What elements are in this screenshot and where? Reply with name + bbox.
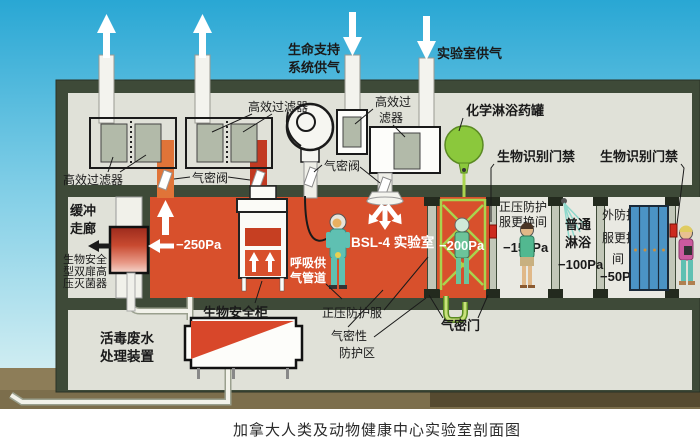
chemical-tank-label: 化学淋浴药罐 — [466, 103, 544, 118]
hepa-label-top: 高效过滤器 — [248, 99, 308, 114]
biometric-reader-2 — [670, 224, 677, 237]
hepa-filter-box-4 — [370, 127, 440, 173]
autoclave-label-2: 型双扉高 — [63, 264, 107, 278]
hepa-label-mid-1: 高效过 — [375, 94, 411, 109]
autoclave — [110, 227, 148, 273]
pressure-suit-label: 正压防护服 — [322, 305, 382, 320]
autoclave-label-1: 生物安全 — [63, 252, 107, 266]
figure-caption: 加拿大人类及动物健康中心实验室剖面图 — [233, 421, 521, 439]
autoclave-drain-pipe — [127, 273, 135, 311]
biometric-reader-1 — [490, 225, 497, 238]
suit-room-label-1: 正压防护 — [499, 199, 547, 214]
cabinet-label: 生物安全柜 — [203, 305, 268, 320]
valve-label-left: 气密阀 — [192, 170, 228, 185]
supply-diffuser — [367, 192, 403, 205]
lab-supply-label: 实验室供气 — [437, 46, 502, 61]
bio-access-label-left: 生物识别门禁 — [497, 149, 575, 164]
plain-shower-pressure: −100Pa — [558, 257, 604, 272]
bsl4-lab-cross-section-figure: 生命支持 系统供气 实验室供气 — [0, 0, 700, 448]
bsl4-room-label: BSL-4 实验室 — [351, 234, 435, 250]
buffer-pass-door-top — [116, 197, 142, 229]
breathing-label-2: 气管道 — [289, 270, 326, 285]
plain-shower-label-2: 淋浴 — [565, 235, 592, 250]
supply-stack-2 — [419, 58, 434, 130]
supply-stack-1 — [345, 55, 360, 115]
biosafety-cabinet — [237, 186, 287, 291]
bio-access-label-right: 生物识别门禁 — [600, 149, 678, 164]
airtight-zone-label-2: 防护区 — [339, 345, 375, 360]
hepa-label-mid-2: 滤器 — [379, 111, 403, 125]
exhaust-stack-1 — [99, 55, 114, 123]
life-support-supply-label-2: 系统供气 — [288, 60, 340, 75]
life-support-supply-label-1: 生命支持 — [288, 42, 340, 57]
breathing-label-1: 呼吸供 — [290, 255, 326, 270]
hepa-label-left: 高效过滤器 — [63, 172, 123, 187]
hepa-filter-box-3 — [337, 110, 367, 154]
buffer-label-1: 缓冲 — [70, 203, 96, 218]
lockers — [630, 206, 668, 290]
exhaust-stack-2 — [195, 55, 210, 123]
airtight-door-label: 气密门 — [441, 318, 480, 333]
diagram-canvas: 生命支持 系统供气 实验室供气 — [0, 0, 700, 448]
basement-floor — [68, 310, 692, 390]
autoclave-label-3: 压灭菌器 — [63, 277, 107, 290]
valve-label-mid: 气密阀 — [324, 158, 360, 173]
wastewater-label-2: 处理装置 — [99, 348, 154, 364]
lab-pressure: −250Pa — [176, 237, 222, 252]
chem-shower-pressure: −200Pa — [439, 238, 485, 253]
outer-room-label-3: 间 — [612, 252, 624, 266]
airtight-zone-label-1: 气密性 — [331, 328, 367, 343]
wastewater-label-1: 活毒废水 — [100, 330, 154, 346]
buffer-label-2: 走廊 — [70, 221, 96, 236]
plain-shower-label-1: 普通 — [565, 217, 591, 232]
ground-strip-dark — [430, 391, 700, 407]
